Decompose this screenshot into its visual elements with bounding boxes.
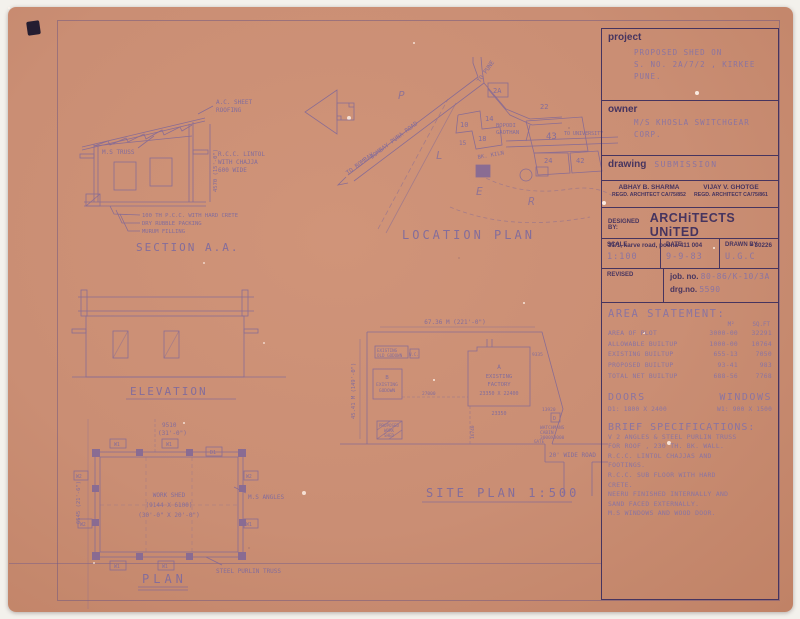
spec-line: CRETE. xyxy=(608,481,772,491)
factory-tag: A xyxy=(497,364,501,371)
architects-section: ABHAY B. SHARMA REGD. ARCHITECT CA/75/85… xyxy=(602,181,778,208)
dim-16740: 16740 xyxy=(470,425,476,439)
area-row-sqft: 32291 xyxy=(738,329,772,340)
spec-line: NEERU FINISHED INTERNALLY AND xyxy=(608,490,772,500)
site-plan-drawing: 67.36 M (221'-0") 45.41 M (149'-0") A EX… xyxy=(340,294,608,534)
elevation-linework xyxy=(72,290,286,377)
area-row: AREA OF PLOT 3000-00 32291 xyxy=(608,329,772,340)
area-row-label: PROPOSED BUILTUP xyxy=(608,361,694,372)
area-row-label: EXISTING BUILTUP xyxy=(608,350,694,361)
to-bombay-label: TO BOMBAY xyxy=(345,151,375,176)
section-height-dim: 4570 (15'-0") xyxy=(213,149,219,192)
col-header-m2: M² xyxy=(728,322,735,328)
owner-section: owner M/S KHOSLA SWITCHGEAR CORP. xyxy=(602,101,778,156)
project-line: PROPOSED SHED ON xyxy=(634,47,772,59)
project-label: project xyxy=(608,32,772,43)
owner-label: owner xyxy=(608,104,772,115)
col-header-sqft: SQ.FT xyxy=(753,322,770,328)
revised-label: REVISED xyxy=(607,272,658,278)
area-row-sqft: 7050 xyxy=(738,350,772,361)
spec-line: V 2 ANGLES & STEEL PURLIN TRUSS xyxy=(608,433,772,443)
factory-label: EXISTING xyxy=(486,374,513,380)
plot-22: 22 xyxy=(540,103,548,111)
spec-line: SAND FACED EXTERNALLY. xyxy=(608,500,772,510)
spec-line: R.C.C. SUB FLOOR WITH HARD xyxy=(608,471,772,481)
designed-by-label: DESIGNED BY: xyxy=(608,219,646,231)
section-floor-note3: MURUM FILLING xyxy=(142,229,185,235)
factory-dim: 23350 X 22400 xyxy=(479,391,518,397)
architect-reg: REGD. ARCHITECT CA/75/861 xyxy=(690,192,772,198)
area-row-sqft: 10764 xyxy=(738,340,772,351)
drg-no-label: drg.no. xyxy=(670,285,697,294)
plan-ms-angles-label: M.S ANGLES xyxy=(248,494,285,501)
scale-cell: SCALE 1:100 xyxy=(602,239,661,268)
firm-name: ARCHiTECTS UNiTED xyxy=(650,211,772,239)
scale-label: SCALE xyxy=(607,242,655,248)
plot-42: 42 xyxy=(576,157,584,165)
section-lintol-label: R.C.C. LINTOL xyxy=(218,151,265,158)
area-row-sqft: 7768 xyxy=(738,372,772,383)
drawn-by-value: U.G.C xyxy=(725,252,773,262)
godown-b-tag: B xyxy=(385,375,389,381)
plan-dim-top: 9510 xyxy=(162,422,177,429)
letter-r: R xyxy=(528,195,535,208)
spec-line: FOOTINGS. xyxy=(608,461,772,471)
plot-18: 18 xyxy=(478,135,486,143)
title-block: project PROPOSED SHED ON S. NO. 2A/7/2 ,… xyxy=(601,28,779,600)
plan-dim-left: 6545 (21'-6") xyxy=(76,481,82,524)
site-dim-top: 67.36 M (221'-0") xyxy=(424,319,485,326)
location-linework xyxy=(338,57,618,233)
drawing-value: SUBMISSION xyxy=(654,160,717,169)
paper-speckles xyxy=(8,7,10,9)
plan-w1-tag: W1 xyxy=(114,442,120,448)
scale-date-row: SCALE 1:100 DATE 9-9-83 DRAWN BY U.G.C xyxy=(602,239,778,269)
letter-e: E xyxy=(476,185,483,198)
revised-cell: REVISED xyxy=(602,269,664,302)
drawing-label: drawing xyxy=(608,159,646,170)
section-floor-note2: DRY RUBBLE PACKING xyxy=(142,221,202,227)
to-university-label: TO UNIVERSITY xyxy=(564,131,603,137)
elevation-title: ELEVATION xyxy=(130,385,208,398)
window-spec: W1: 900 X 1500 xyxy=(717,406,772,413)
plan-w2-tag: W2 xyxy=(246,474,252,480)
job-cell: job. no. 80-86/K-10/3A drg.no. 5590 xyxy=(664,269,778,302)
road-label: 20' WIDE ROAD xyxy=(549,452,596,459)
date-value: 9-9-83 xyxy=(666,252,714,262)
plan-title: PLAN xyxy=(142,572,187,586)
godown-b-label: EXISTING xyxy=(376,382,398,388)
project-line: PUNE. xyxy=(634,71,772,83)
area-row: EXISTING BUILTUP 655-13 7050 xyxy=(608,350,772,361)
job-no-value: 80-86/K-10/3A xyxy=(701,272,770,281)
drawn-by-label: DRAWN BY xyxy=(725,242,773,248)
plot-43: 43 xyxy=(546,132,557,142)
spec-line: R.C.C. LINTOL CHAJJAS AND xyxy=(608,452,772,462)
windows-title: WINDOWS xyxy=(719,392,772,403)
letter-l: L xyxy=(436,149,443,162)
door-spec: D1: 1800 X 2400 xyxy=(608,406,667,413)
area-statement-section: AREA STATEMENT: M² SQ.FT AREA OF PLOT 30… xyxy=(602,303,778,599)
owner-line: M/S KHOSLA SWITCHGEAR xyxy=(634,117,772,129)
godown-b-label2: GODOWN xyxy=(379,388,396,394)
area-row-label: ALLOWABLE BUILTUP xyxy=(608,340,694,351)
drawing-section: drawing SUBMISSION xyxy=(602,156,778,181)
drawn-by-cell: DRAWN BY U.G.C xyxy=(720,239,778,268)
spec-line: FOR ROOF , 230 TH. BK. WALL. xyxy=(608,442,772,452)
bombay-puna-road-label: BOMBAY PUNA ROAD xyxy=(369,120,420,161)
section-roofing-label2: ROOFING xyxy=(216,107,242,114)
area-statement-title: AREA STATEMENT: xyxy=(608,308,772,320)
watchman-tag: D xyxy=(553,416,556,422)
gate-label: GATE xyxy=(534,439,545,444)
dim-27000: 27000 xyxy=(422,391,436,397)
section-roofing-label: A.C. SHEET xyxy=(216,99,253,106)
area-row-label: AREA OF PLOT xyxy=(608,329,694,340)
architect-1: ABHAY B. SHARMA REGD. ARCHITECT CA/75/85… xyxy=(608,184,690,204)
wc-label: W.C. xyxy=(409,352,419,357)
plot-14: 14 xyxy=(485,115,493,123)
factory-dim-bottom: 23350 xyxy=(491,411,506,417)
plot-2a: 2A xyxy=(493,87,502,95)
factory-dim-right: 9335 xyxy=(532,352,543,358)
area-row: TOTAL NET BUILTUP 688-56 7768 xyxy=(608,372,772,383)
scale-value: 1:100 xyxy=(607,252,655,262)
plan-room-label: WORK SHED xyxy=(153,492,186,499)
area-row-sqft: 983 xyxy=(738,361,772,372)
elevation-drawing: ELEVATION xyxy=(72,282,292,407)
project-line: S. NO. 2A/7/2 , KIRKEE xyxy=(634,59,772,71)
section-aa-drawing: A.C. SHEET ROOFING M.S TRUSS R.C.C. LINT… xyxy=(70,84,315,259)
area-row-m2: 1000-00 xyxy=(694,340,738,351)
plan-w2-tag: W2 xyxy=(76,474,82,480)
section-floor-note1: 100 TH P.C.C. WITH HARD CRETE xyxy=(142,213,238,219)
plan-door-tag: D1 xyxy=(210,450,216,456)
scanned-drawing-sheet: A.C. SHEET ROOFING M.S TRUSS R.C.C. LINT… xyxy=(0,0,800,619)
plan-drawing: 9510 (31'-0") 6545 (21'-6") WORK SHED (9… xyxy=(66,419,326,614)
plot-10: 10 xyxy=(460,121,468,129)
owner-line: CORP. xyxy=(634,129,772,141)
section-lintol-label2: WITH CHAJJA xyxy=(218,159,258,166)
area-row: ALLOWABLE BUILTUP 1000-00 10764 xyxy=(608,340,772,351)
project-section: project PROPOSED SHED ON S. NO. 2A/7/2 ,… xyxy=(602,29,778,101)
section-title: SECTION A.A. xyxy=(136,241,239,254)
gaothan-label: GAOTHAN xyxy=(496,130,519,136)
date-label: DATE xyxy=(666,242,714,248)
to-pune-label: TO PUNE xyxy=(476,59,496,84)
site-plan-title: SITE PLAN 1:500 xyxy=(426,486,579,500)
architect-name: VIJAY V. GHOTGE xyxy=(690,184,772,191)
area-row-m2: 688-56 xyxy=(694,372,738,383)
area-row-m2: 655-13 xyxy=(694,350,738,361)
old-godown-label2: OLD GODOWN xyxy=(377,353,403,358)
proposed-shed-label3: SHED xyxy=(384,433,395,438)
plan-room-dim-ft: (30'-0" X 20'-0") xyxy=(138,512,199,519)
job-no-label: job. no. xyxy=(670,272,698,281)
brick-kiln-label: BK. KILN xyxy=(477,150,504,161)
location-plan-title: LOCATION PLAN xyxy=(402,228,535,242)
revised-job-row: REVISED job. no. 80-86/K-10/3A drg.no. 5… xyxy=(602,269,778,303)
plan-dim-top2: (31'-0") xyxy=(158,430,187,437)
doors-title: DOORS xyxy=(608,392,646,403)
architect-2: VIJAY V. GHOTGE REGD. ARCHITECT CA/75/86… xyxy=(690,184,772,204)
plan-purlin-label: STEEL PURLIN TRUSS xyxy=(216,568,281,575)
plan-w1-tag: W1 xyxy=(246,522,252,528)
section-lintol-label3: 600 WIDE xyxy=(218,167,247,174)
area-row-m2: 3000-00 xyxy=(694,329,738,340)
plan-room-dim-mm: (9144 X 6100) xyxy=(146,502,193,509)
area-row-label: TOTAL NET BUILTUP xyxy=(608,372,694,383)
date-cell: DATE 9-9-83 xyxy=(661,239,720,268)
plan-w1-tag: W1 xyxy=(114,564,120,570)
site-dim-left: 45.41 M (149'-0") xyxy=(351,363,357,419)
plot-24: 24 xyxy=(544,157,552,165)
plan-w1-tag: W1 xyxy=(162,564,168,570)
brief-specs-title: BRIEF SPECIFICATIONS: xyxy=(608,422,772,433)
bopodi-label: BOPODI xyxy=(496,123,516,129)
designed-by-section: DESIGNED BY: ARCHiTECTS UNiTED 31/1, kar… xyxy=(602,208,778,239)
location-plan-drawing: TO PUNE BOMBAY PUNA ROAD TO BOMBAY TO UN… xyxy=(330,57,620,262)
letter-p: P xyxy=(398,89,405,102)
drg-no-value: 5590 xyxy=(699,285,720,294)
plan-w2-tag: W2 xyxy=(80,522,86,528)
dim-13920: 13920 xyxy=(542,407,556,413)
punch-mark xyxy=(26,20,41,36)
area-row-m2: 93-41 xyxy=(694,361,738,372)
plan-w1-tag: W1 xyxy=(166,442,172,448)
architect-name: ABHAY B. SHARMA xyxy=(608,184,690,191)
factory-label2: FACTORY xyxy=(487,382,511,388)
plot-15: 15 xyxy=(459,140,467,147)
blueprint-paper: A.C. SHEET ROOFING M.S TRUSS R.C.C. LINT… xyxy=(8,7,793,612)
spec-line: M.S WINDOWS AND WOOD DOOR. xyxy=(608,509,772,519)
section-truss-label: M.S TRUSS xyxy=(102,149,135,156)
architect-reg: REGD. ARCHITECT CA/75/852 xyxy=(608,192,690,198)
area-row: PROPOSED BUILTUP 93-41 983 xyxy=(608,361,772,372)
